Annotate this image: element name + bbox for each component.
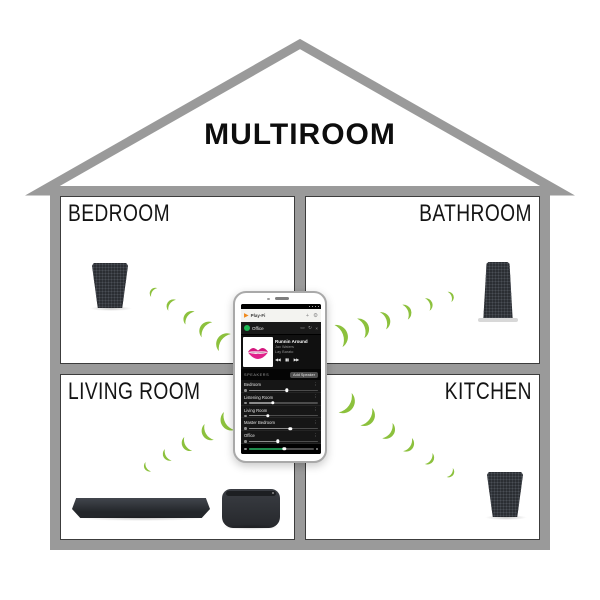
soundbar-shadow — [76, 515, 206, 521]
speaker-volume-slider[interactable] — [244, 427, 318, 430]
speaker-name: Living Room — [244, 408, 314, 413]
previous-button[interactable]: ◀◀ — [275, 357, 280, 362]
zone-name: Office — [252, 326, 297, 331]
master-volume-slider[interactable] — [249, 448, 314, 449]
front-camera — [267, 298, 270, 301]
playfi-logo-icon: ▶ — [244, 313, 249, 319]
speaker-volume-slider[interactable] — [244, 415, 318, 418]
phone-screen: ▶ Play-Fi + ⚙ Office ▭ ↻ × — [241, 304, 321, 454]
bedroom-speaker — [92, 263, 128, 308]
speaker-volume-slider[interactable] — [244, 402, 318, 405]
multiroom-diagram: MULTIROOM BEDROOM BATHROOM LIVING ROOM K… — [0, 0, 600, 600]
next-button[interactable]: ▶▶ — [294, 357, 299, 362]
album-art — [243, 337, 273, 367]
transport-controls: ◀◀ ▮▮ ▶▶ — [275, 357, 319, 362]
speaker-mini-icon — [244, 402, 247, 405]
speaker-row: Listening Room⋮ — [241, 393, 321, 406]
speakers-header: SPEAKERS Add Speaker — [241, 369, 321, 380]
speakers-header-label: SPEAKERS — [244, 373, 290, 377]
speaker-mini-icon — [244, 440, 247, 443]
track-album: Lay Barato — [275, 350, 319, 354]
speaker-volume-slider[interactable] — [244, 440, 318, 443]
speaker-grille — [226, 491, 276, 496]
speaker-mini-icon — [244, 415, 247, 418]
speaker-row: Office⋮ — [241, 431, 321, 444]
source-row: Office ▭ ↻ × — [241, 322, 321, 335]
speaker-name: Master Bedroom — [244, 420, 314, 425]
speaker-mini-icon — [244, 448, 247, 451]
earpiece-slot — [275, 297, 289, 300]
close-icon[interactable]: × — [315, 326, 318, 331]
now-playing-card: Runnin Around Jax Waters Lay Barato ◀◀ ▮… — [241, 335, 321, 369]
speaker-menu-icon[interactable]: ⋮ — [314, 382, 319, 388]
cyl-speaker-shadow — [222, 524, 280, 530]
speaker-menu-icon[interactable]: ⋮ — [314, 407, 319, 413]
room-label-living-room: LIVING ROOM — [68, 378, 200, 406]
bedroom-speaker-shadow — [90, 306, 132, 311]
track-artist: Jax Waters — [275, 345, 319, 349]
add-speaker-button[interactable]: Add Speaker — [290, 372, 318, 378]
room-label-bedroom: BEDROOM — [68, 200, 170, 228]
speaker-row: Bedroom⋮ — [241, 380, 321, 393]
speaker-mini-icon — [244, 427, 247, 430]
cast-icon[interactable]: ▭ — [300, 325, 304, 331]
master-volume-bar — [241, 444, 321, 454]
pause-button[interactable]: ▮▮ — [285, 357, 288, 362]
kitchen-speaker — [487, 472, 523, 517]
speaker-logo-dot — [272, 492, 274, 494]
room-label-bathroom: BATHROOM — [419, 200, 532, 228]
kitchen-speaker-shadow — [485, 515, 527, 520]
speaker-row: Master Bedroom⋮ — [241, 418, 321, 431]
page-title: MULTIROOM — [0, 118, 600, 152]
plus-mini-icon — [316, 448, 319, 451]
living-room-speaker — [222, 489, 280, 528]
speaker-row: Living Room⋮ — [241, 406, 321, 419]
speaker-list: Bedroom⋮Listening Room⋮Living Room⋮Maste… — [241, 380, 321, 444]
speaker-mini-icon — [244, 389, 247, 392]
speaker-name: Bedroom — [244, 382, 314, 387]
speaker-volume-slider[interactable] — [244, 389, 318, 392]
app-bar: ▶ Play-Fi + ⚙ — [241, 309, 321, 322]
app-name: Play-Fi — [251, 313, 302, 318]
smartphone: ▶ Play-Fi + ⚙ Office ▭ ↻ × — [233, 291, 327, 463]
speaker-name: Listening Room — [244, 395, 314, 400]
gear-icon[interactable]: ⚙ — [313, 313, 318, 319]
speaker-name: Office — [244, 433, 314, 438]
track-title: Runnin Around — [275, 339, 319, 344]
bathroom-speaker-base — [478, 318, 518, 322]
speaker-menu-icon[interactable]: ⋮ — [314, 420, 319, 426]
room-label-kitchen: KITCHEN — [445, 378, 532, 406]
add-icon[interactable]: + — [306, 313, 309, 319]
speaker-menu-icon[interactable]: ⋮ — [314, 433, 319, 439]
refresh-icon[interactable]: ↻ — [308, 325, 312, 331]
spotify-icon — [244, 325, 250, 331]
speaker-menu-icon[interactable]: ⋮ — [314, 394, 319, 400]
bathroom-speaker — [482, 262, 514, 320]
